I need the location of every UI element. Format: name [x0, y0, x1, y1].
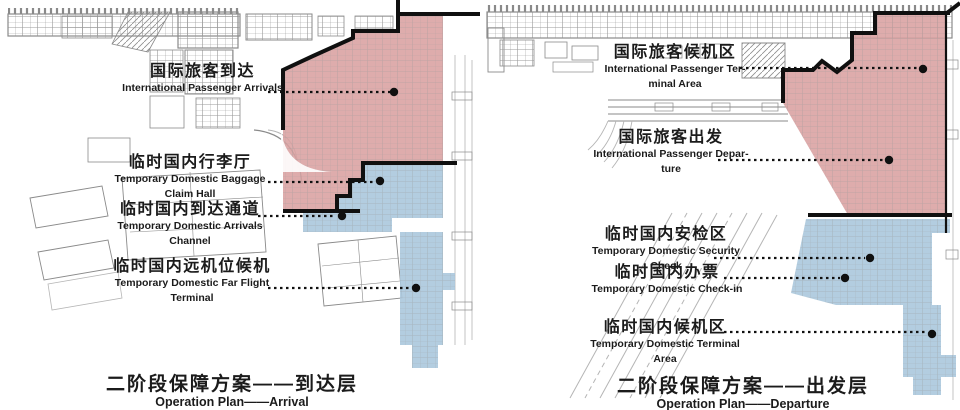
label-far-flight-cn: 临时国内远机位候机 — [82, 258, 302, 276]
label-baggage-claim-cn: 临时国内行李厅 — [80, 154, 300, 172]
label-intl-arrivals: 国际旅客到达 International Passenger Arrivals — [95, 63, 310, 96]
label-intl-terminal-area-cn: 国际旅客候机区 — [565, 44, 785, 62]
label-intl-departure-cn: 国际旅客出发 — [561, 129, 781, 147]
label-domestic-terminal-cn: 临时国内候机区 — [555, 319, 775, 337]
label-security-check-en1: Temporary Domestic Security — [556, 244, 776, 259]
right-red-international-zone — [783, 13, 947, 215]
label-intl-arrivals-en: International Passenger Arrivals — [95, 81, 310, 96]
label-baggage-claim: 临时国内行李厅 Temporary Domestic Baggage Claim… — [80, 154, 300, 202]
label-check-in-cn: 临时国内办票 — [557, 264, 777, 282]
label-intl-arrivals-cn: 国际旅客到达 — [95, 63, 310, 81]
left-blue-farflight-zone — [400, 232, 455, 368]
caption-arrival-plan: 二阶段保障方案——到达层 Operation Plan——Arrival — [92, 374, 372, 409]
label-arrivals-channel-cn: 临时国内到达通道 — [80, 201, 300, 219]
right-blue-terminal-strip-zone — [903, 305, 956, 395]
label-domestic-terminal-en2: Area — [555, 352, 775, 367]
label-arrivals-channel-en2: Channel — [80, 234, 300, 249]
caption-departure-plan-cn: 二阶段保障方案——出发层 — [603, 376, 883, 397]
terminal-plan-diagram: 国际旅客到达 International Passenger Arrivals … — [0, 0, 960, 410]
label-baggage-claim-en1: Temporary Domestic Baggage — [80, 172, 300, 187]
label-domestic-terminal: 临时国内候机区 Temporary Domestic Terminal Area — [555, 319, 775, 367]
label-check-in: 临时国内办票 Temporary Domestic Check-in — [557, 264, 777, 297]
label-intl-terminal-area-en1: International Passenger Ter- — [565, 62, 785, 77]
label-baggage-claim-en2: Claim Hall — [80, 187, 300, 202]
caption-arrival-plan-cn: 二阶段保障方案——到达层 — [92, 374, 372, 395]
label-security-check-cn: 临时国内安检区 — [556, 226, 776, 244]
caption-departure-plan: 二阶段保障方案——出发层 Operation Plan——Departure — [603, 376, 883, 410]
label-arrivals-channel-en1: Temporary Domestic Arrivals — [80, 219, 300, 234]
label-far-flight-en1: Temporary Domestic Far Flight — [82, 276, 302, 291]
label-intl-departure-en1: International Passenger Depar- — [561, 147, 781, 162]
label-far-flight-en2: Terminal — [82, 291, 302, 306]
label-intl-departure-en2: ture — [561, 162, 781, 177]
label-intl-terminal-area-en2: minal Area — [565, 77, 785, 92]
label-far-flight: 临时国内远机位候机 Temporary Domestic Far Flight … — [82, 258, 302, 306]
label-intl-terminal-area: 国际旅客候机区 International Passenger Ter- min… — [565, 44, 785, 92]
label-intl-departure: 国际旅客出发 International Passenger Depar- tu… — [561, 129, 781, 177]
label-check-in-en: Temporary Domestic Check-in — [557, 282, 777, 297]
label-domestic-terminal-en1: Temporary Domestic Terminal — [555, 337, 775, 352]
caption-departure-plan-en: Operation Plan——Departure — [603, 397, 883, 410]
caption-arrival-plan-en: Operation Plan——Arrival — [92, 395, 372, 409]
label-arrivals-channel: 临时国内到达通道 Temporary Domestic Arrivals Cha… — [80, 201, 300, 249]
